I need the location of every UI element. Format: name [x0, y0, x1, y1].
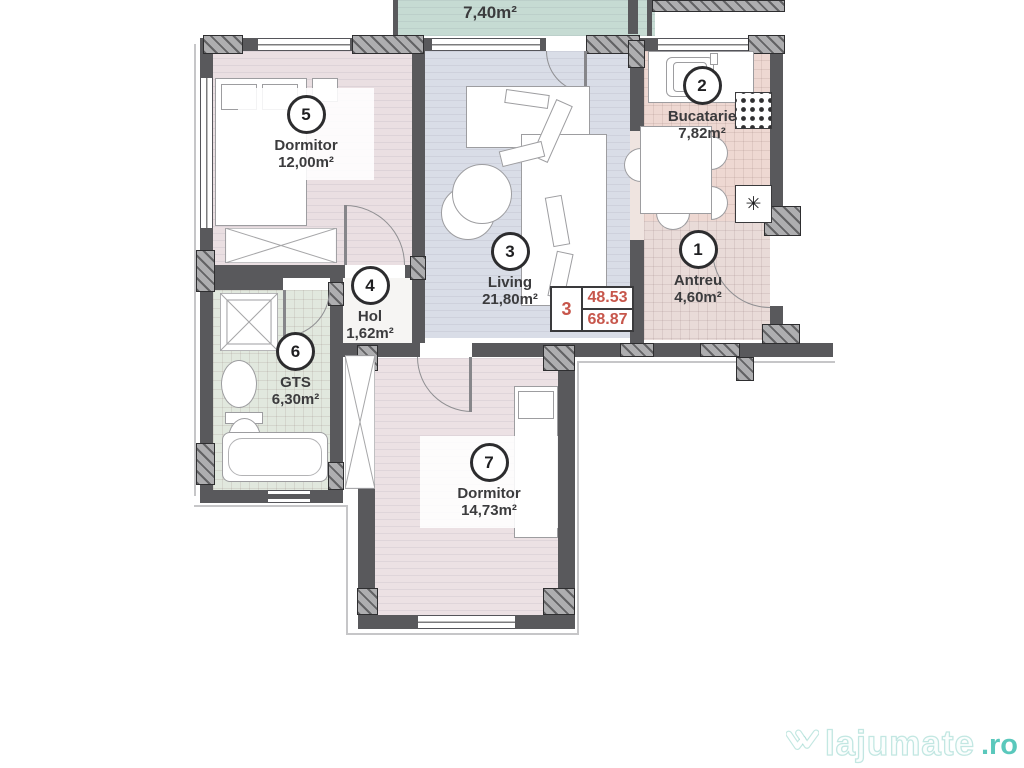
lajumate-logo-icon — [786, 720, 819, 764]
room-area: 21,80m² — [482, 291, 538, 308]
useful-area-value: 48.53 — [583, 288, 632, 310]
outline-bed7-right — [577, 361, 579, 635]
room-number-badge: 2 — [683, 66, 722, 105]
room-name: GTS — [280, 374, 311, 391]
wall-top-living-a — [425, 38, 432, 51]
column-block — [543, 588, 575, 615]
outline-bed7-bottom — [346, 633, 578, 635]
fridge-snowflake-icon: ✳ — [746, 193, 762, 216]
room-name: Antreu — [674, 272, 722, 289]
room-number-badge: 5 — [287, 95, 326, 134]
room-name: Bucatarie — [668, 108, 736, 125]
bedroom5-door-leaf — [344, 205, 347, 265]
room-number-badge: 4 — [351, 266, 390, 305]
wall-bath-top-a — [213, 278, 283, 290]
room-number-badge: 7 — [470, 443, 509, 482]
wall-bath-bottom-b — [310, 490, 343, 503]
entrance-door-opening — [770, 248, 783, 306]
room-name: Dormitor — [274, 137, 337, 154]
column-block — [196, 443, 215, 485]
coffee-table — [452, 164, 512, 224]
wardrobe — [225, 228, 337, 263]
room-name: Dormitor — [457, 485, 520, 502]
bathtub-inner — [228, 438, 322, 476]
wall-bedroom7-bottom-a — [358, 615, 418, 629]
apartment-number: 3 — [552, 288, 583, 330]
column-block — [357, 588, 378, 615]
column-block — [352, 35, 424, 54]
total-area-value: 68.87 — [583, 310, 632, 330]
wall-bedroom7-bottom-b — [515, 615, 575, 629]
room-area: 7,82m² — [678, 125, 726, 142]
room-number-badge: 1 — [679, 230, 718, 269]
balcony-label: Balcon 7,40m² — [405, 0, 575, 23]
column-block — [328, 462, 344, 490]
floorplan-canvas: ✳ Balcon 7,40m² 5 Dormitor 12,00m² 2 Buc… — [0, 0, 1024, 768]
apartment-info-box: 3 48.53 68.87 — [550, 286, 634, 332]
column-block — [628, 40, 645, 68]
window-bedroom7-bottom — [418, 615, 515, 629]
outline-step-vertical — [346, 505, 348, 633]
column-block — [762, 324, 800, 344]
faucet — [710, 53, 718, 65]
room-label-gts: 6 GTS 6,30m² — [238, 332, 353, 408]
room-number-badge: 6 — [276, 332, 315, 371]
room-name: Hol — [358, 308, 382, 325]
room-name: Living — [488, 274, 532, 291]
column-block — [543, 345, 575, 371]
watermark: lajumate.ro — [786, 712, 1018, 764]
fridge: ✳ — [735, 185, 772, 223]
window-bedroom5-top — [258, 38, 350, 51]
window-living-top — [432, 38, 540, 51]
wall-left-a — [200, 51, 213, 78]
outline-antreu-bottom — [577, 361, 835, 363]
bathroom-door-leaf — [283, 290, 286, 337]
balcony-divider — [628, 0, 638, 34]
wall-bath-bottom-a — [200, 490, 268, 503]
bedroom7-door-leaf — [469, 357, 472, 412]
column-block — [700, 343, 740, 357]
room-label-dormitor5: 5 Dormitor 12,00m² — [238, 88, 374, 180]
outline-bath-bottom — [194, 505, 348, 507]
balcony-door-opening — [546, 38, 588, 51]
room-area: 12,00m² — [278, 154, 334, 171]
wall-stub-below-antreu — [736, 357, 754, 381]
room-number-badge: 3 — [491, 232, 530, 271]
room-label-hol: 4 Hol 1,62m² — [315, 266, 425, 342]
column-block — [196, 250, 215, 292]
window-bedroom5-left — [200, 78, 213, 228]
room-label-bucatarie: 2 Bucatarie 7,82m² — [642, 66, 762, 142]
column-block — [203, 35, 243, 54]
watermark-brand: lajumate — [825, 724, 975, 764]
room-area: 14,73m² — [461, 502, 517, 519]
balcony-area: 7,40m² — [405, 3, 575, 23]
balcony-rail-left — [393, 0, 398, 36]
wall-bedroom7-right — [558, 357, 575, 615]
pillow — [518, 391, 554, 419]
wall-bedroom5-living — [412, 51, 425, 265]
column-block — [620, 343, 654, 357]
balcony-neighbor-rail — [652, 0, 785, 12]
watermark-tld: .ro — [981, 726, 1018, 764]
room-label-dormitor7: 7 Dormitor 14,73m² — [420, 436, 558, 528]
window-bath-sill — [268, 494, 310, 499]
room-area: 6,30m² — [272, 391, 320, 408]
room-label-antreu: 1 Antreu 4,60m² — [638, 230, 758, 306]
room-area: 1,62m² — [346, 325, 394, 342]
window-kitchen-top — [658, 38, 753, 51]
room-area: 4,60m² — [674, 289, 722, 306]
